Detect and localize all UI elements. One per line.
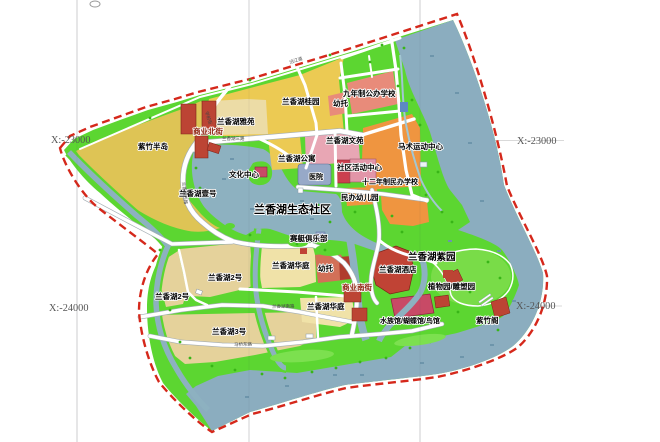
svg-text:幼托: 幼托 [333,98,348,108]
svg-text:兰香湖2号: 兰香湖2号 [208,272,243,282]
svg-text:植物园/雕塑园: 植物园/雕塑园 [427,281,476,291]
svg-text:兰香湖紫园: 兰香湖紫园 [408,251,456,263]
svg-text:兰香湖华庭: 兰香湖华庭 [307,301,345,311]
svg-text:兰香湖华庭: 兰香湖华庭 [272,260,310,270]
svg-text:赛艇俱乐部: 赛艇俱乐部 [289,233,328,243]
svg-text:商业南街: 商业南街 [342,282,372,292]
svg-text:兰香湖2号: 兰香湖2号 [155,291,190,301]
svg-text:兰香湖3号: 兰香湖3号 [212,326,247,336]
svg-text:民办幼儿园: 民办幼儿园 [341,192,379,202]
svg-text:兰香湖生态社区: 兰香湖生态社区 [254,202,331,216]
svg-text:十二年制民办学校: 十二年制民办学校 [362,177,419,186]
svg-text:兰香湖酒店: 兰香湖酒店 [379,264,417,274]
svg-text:紫竹阁: 紫竹阁 [476,315,499,325]
svg-text:商业北街: 商业北街 [193,126,223,136]
svg-text:兰香湖雅苑: 兰香湖雅苑 [217,116,255,126]
svg-text:兰香湖桂园: 兰香湖桂园 [282,96,320,106]
svg-text:文化中心: 文化中心 [229,169,259,179]
svg-text:社区活动中心: 社区活动中心 [336,162,382,172]
svg-text:紫竹半岛: 紫竹半岛 [138,141,168,151]
svg-text:水族馆/蝴蝶馆/鸟馆: 水族馆/蝴蝶馆/鸟馆 [380,316,440,325]
svg-text:X:-24000: X:-24000 [516,301,555,312]
svg-text:兰香湖三路: 兰香湖三路 [222,135,245,142]
svg-text:兰香湖文苑: 兰香湖文苑 [326,135,364,145]
svg-text:X:-23000: X:-23000 [517,136,556,147]
svg-text:医院: 医院 [309,172,323,181]
svg-text:兰香湖公寓: 兰香湖公寓 [278,153,316,163]
svg-text:马术运动中心: 马术运动中心 [398,141,443,151]
svg-text:X:-23000: X:-23000 [51,135,90,146]
svg-text:X:-24000: X:-24000 [49,303,88,314]
svg-text:幼托: 幼托 [318,263,333,273]
svg-text:九年制公办学校: 九年制公办学校 [342,88,396,98]
